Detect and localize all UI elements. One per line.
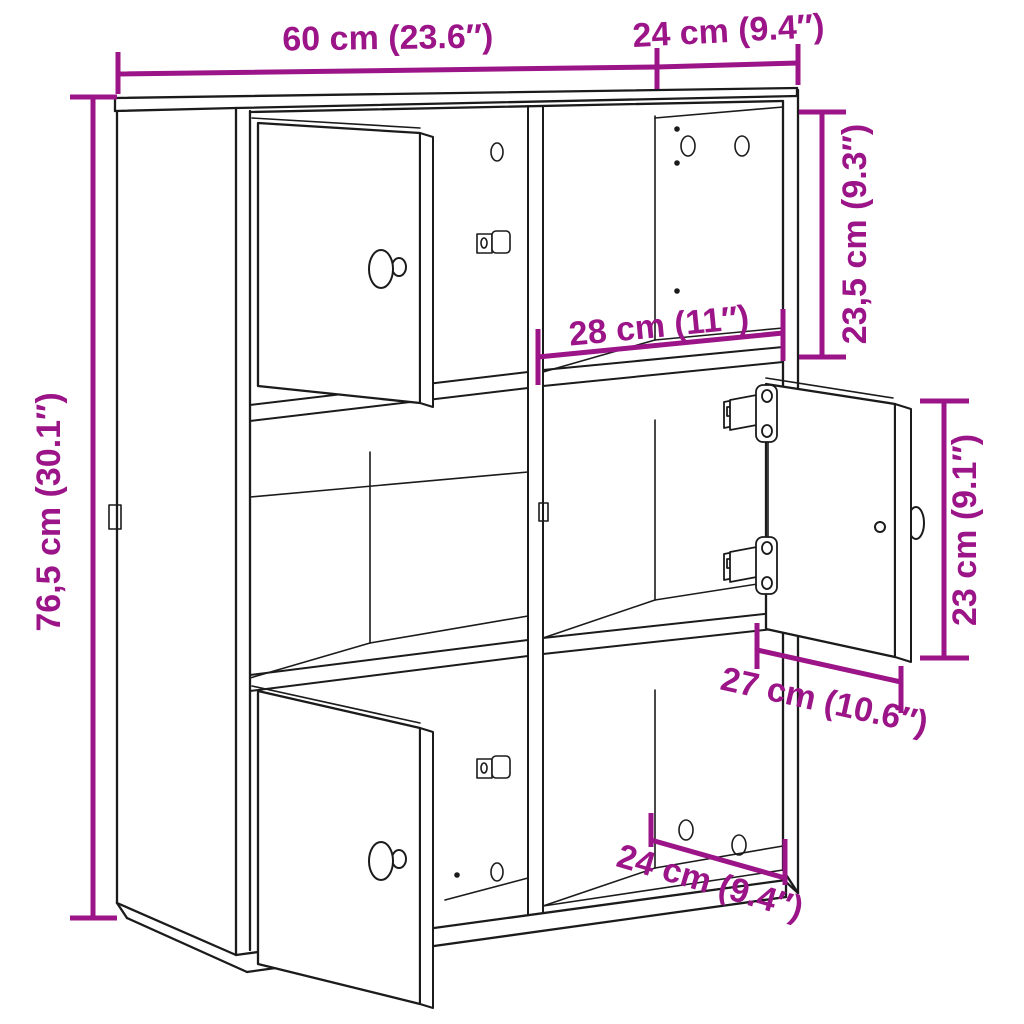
cabinet-drawing [109,88,924,1008]
diagram-canvas: 60 cm (23.6″) 24 cm (9.4″) 76,5 cm (30.1… [0,0,1024,1024]
shelf-pin-hole [681,136,695,156]
left-column-shelves [250,372,528,691]
dimension-label: 24 cm (9.4″) [613,837,808,928]
right-column-shelves [543,347,783,654]
dimension-label: 76,5 cm (30.1″) [30,392,68,631]
shelf-pin-hole [491,143,503,161]
door-knob [369,842,393,880]
middle-right-door [724,378,924,662]
bookcase-dimension-diagram: 60 cm (23.6″) 24 cm (9.4″) 76,5 cm (30.1… [0,0,1024,1024]
middle-right-cubby [539,420,783,638]
door-catch [492,231,510,253]
dimension-label: 23 cm (9.1″) [946,434,984,626]
top-left-door [252,118,433,407]
bottom-left-door [252,686,433,1008]
left-side-panel [117,108,250,955]
door-catch [492,756,510,778]
wall-bracket [109,505,121,529]
shelf-pin-hole [491,863,503,881]
dimension-label: 23,5 cm (9.3″) [836,124,874,344]
knob-stem [392,258,406,276]
hinge-top [724,385,777,442]
bottom-left-cubby [445,756,528,900]
top-panel [115,88,797,112]
knob-screw [875,522,885,532]
dimension-label: 60 cm (23.6″) [282,18,493,59]
shelf-pin-hole [735,136,749,156]
top-left-cubby [477,143,510,253]
shelf-pin-hole [732,835,746,855]
middle-left-cubby [109,452,528,678]
door-knob [369,250,393,288]
shelf-pin-hole [679,820,693,840]
knob-stem [392,850,406,868]
